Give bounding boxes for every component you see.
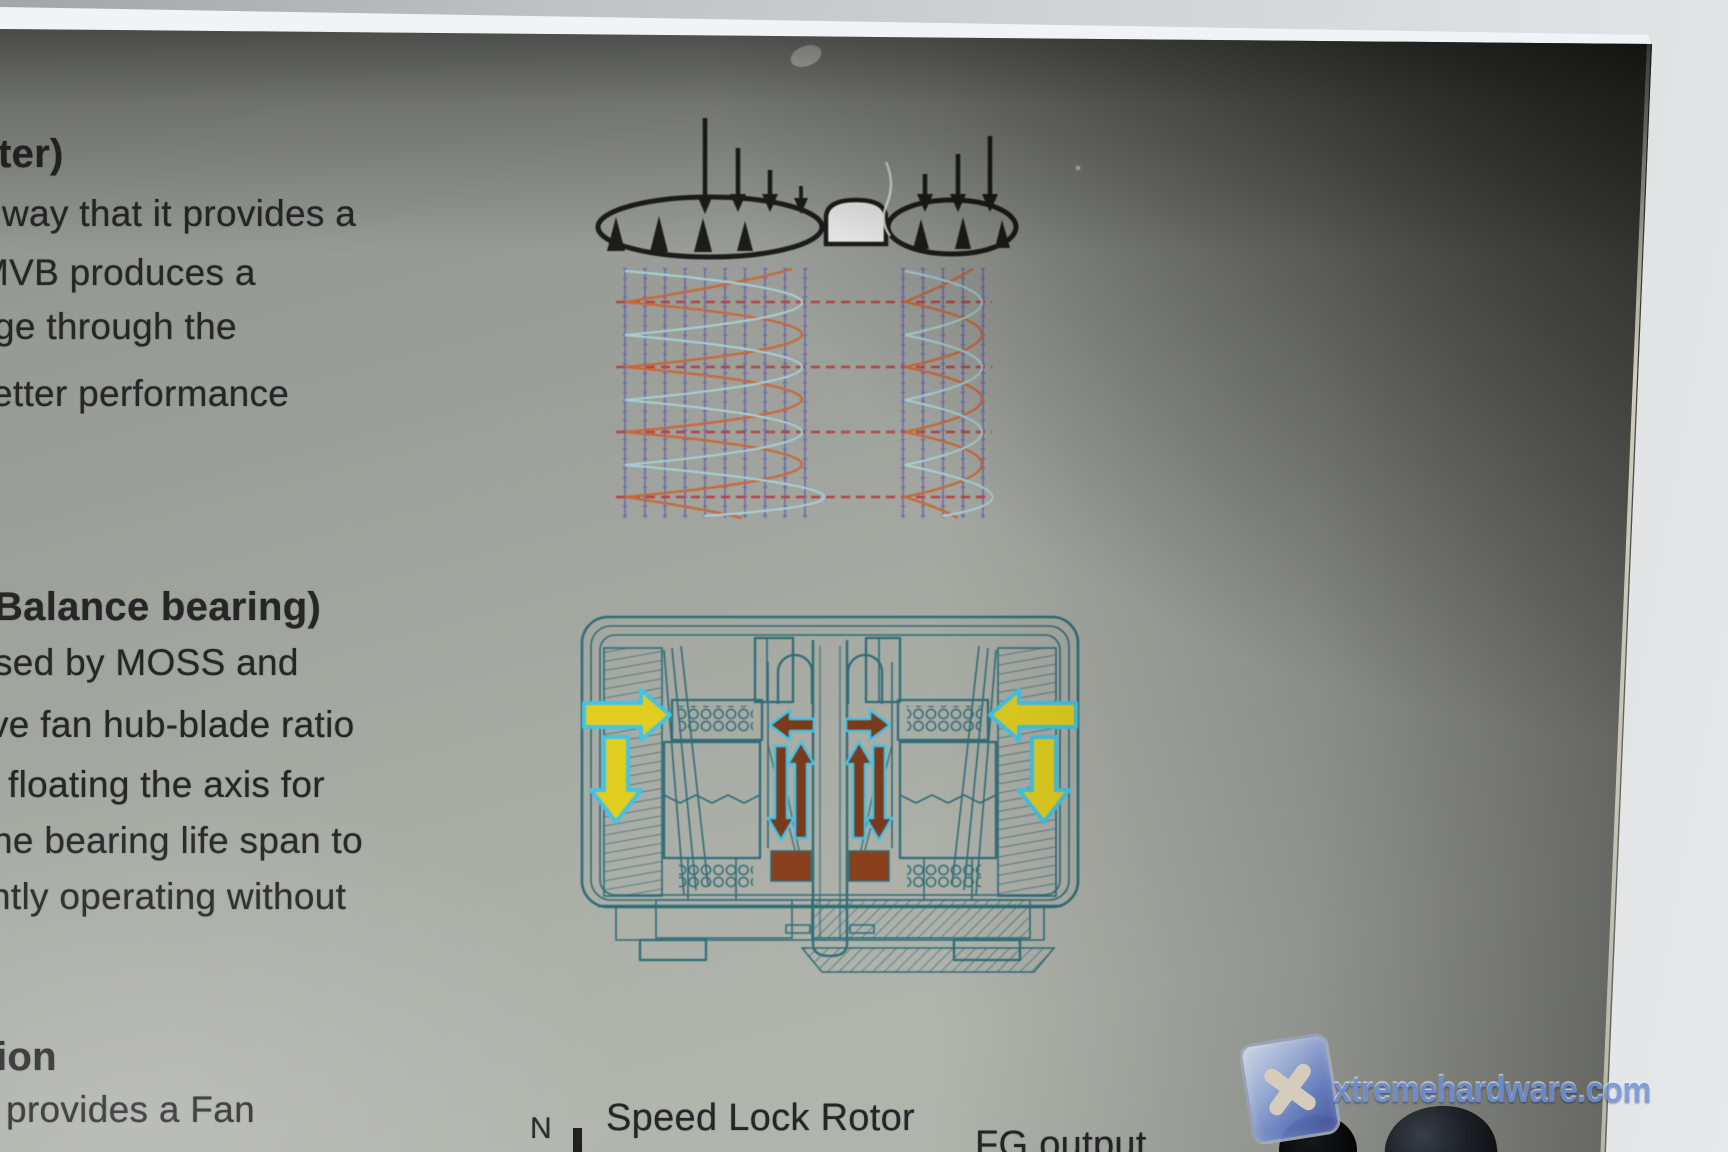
fan-airflow-diagram [598,118,1016,257]
box-face: .th{fill:none;stroke:var(--ink);stroke-w… [0,0,1728,1152]
watermark-x-logo-icon [1238,1032,1343,1147]
left-text-line: ntly operating without [0,876,346,918]
left-text-line: way that it provides a [2,193,356,235]
orange-wave-left [625,269,802,518]
photo-of-fan-box: .th{fill:none;stroke:var(--ink);stroke-w… [0,0,1728,1152]
bearing-cross-section-diagram [582,617,1078,972]
wave-grid-right [903,268,983,518]
printed-diagrams: .th{fill:none;stroke:var(--ink);stroke-w… [0,0,1728,1152]
left-text-heading-2: Balance bearing) [0,585,321,630]
left-text-line: ve fan hub-blade ratio [0,704,355,746]
pole-bar [573,1128,582,1152]
left-text-line: he bearing life span to [0,820,363,862]
speed-lock-rotor-label: Speed Lock Rotor [606,1097,915,1140]
fg-output-label: FG output [975,1124,1147,1152]
left-text-line: sed by MOSS and [0,642,299,684]
left-text-line: provides a Fan [6,1089,255,1131]
left-text-line: floating the axis for [8,764,325,806]
left-text-heading-1: ter) [0,132,64,177]
n-pole-label: N [530,1112,552,1146]
left-text-heading-3: ion [0,1035,57,1080]
left-text-line: etter performance [0,373,289,415]
flux-arrows-brown [768,710,892,840]
left-text-line: MVB produces a [0,252,256,294]
magnetic-wave-diagram [616,268,993,518]
watermark-site-text: xtremehardware.com [1333,1069,1651,1111]
left-text-line: ge through the [0,306,237,348]
